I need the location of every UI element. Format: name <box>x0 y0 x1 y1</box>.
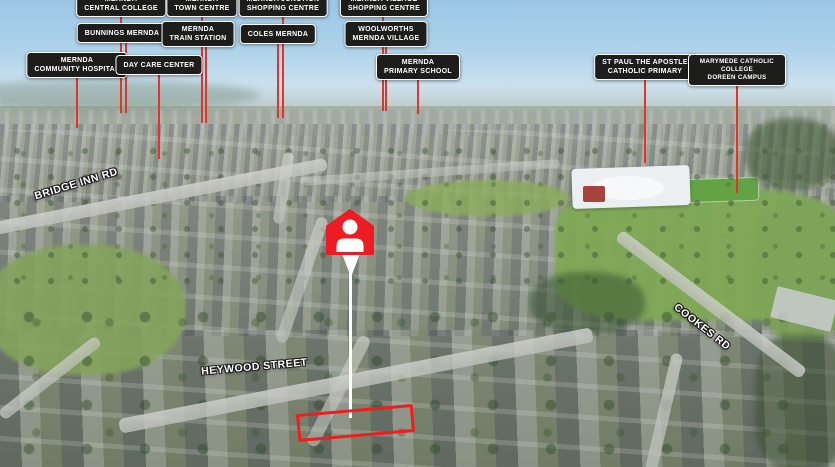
amenity-badge-mernda-primary-school: MERNDA PRIMARY SCHOOL <box>376 54 460 80</box>
pointer-line-day-care <box>158 73 160 159</box>
amenity-badge-marymede-doreen-campus: MARYMEDE CATHOLIC COLLEGE DOREEN CAMPUS <box>688 54 786 86</box>
amenity-badge-bunnings-mernda: BUNNINGS MERNDA <box>77 23 168 43</box>
school-red-building <box>583 186 605 202</box>
amenity-badge-mernda-town-centre: MERNDA TOWN CENTRE <box>166 0 237 17</box>
amenity-badge-mernda-community-hospital: MERNDA COMMUNITY HOSPITAL <box>26 52 127 78</box>
tree-cluster-right <box>745 118 835 190</box>
amenity-badge-mernda-junction-shopping-centre: MERNDA JUNCTION SHOPPING CENTRE <box>239 0 328 17</box>
amenity-badge-st-paul-the-apostle: ST PAUL THE APOSTLE CATHOLIC PRIMARY <box>594 54 696 80</box>
amenity-badge-mernda-village-shopping-centre: MERNDA VILLAGE SHOPPING CENTRE <box>340 0 428 17</box>
property-location-pin <box>326 209 374 255</box>
amenity-badge-woolworths-mernda-village: WOOLWORTHS MERNDA VILLAGE <box>345 21 428 47</box>
tree-cluster-center <box>530 272 645 334</box>
tree-speckles-foreground <box>0 295 835 467</box>
pointer-line-coles <box>277 41 279 118</box>
amenity-badge-day-care-center: DAY CARE CENTER <box>115 55 202 75</box>
tree-speckles-mid <box>0 138 835 298</box>
aerial-photo-scene: MERNDA CENTRAL COLLEGE MERNDA TOWN CENTR… <box>0 0 835 467</box>
pointer-line-marymede <box>736 75 738 193</box>
pointer-line-train-station <box>205 42 207 123</box>
amenity-badge-mernda-central-college: MERNDA CENTRAL COLLEGE <box>76 0 166 17</box>
pointer-line-community-hospital <box>76 74 78 128</box>
pointer-line-primary-school <box>417 76 419 114</box>
amenity-badge-coles-mernda: COLES MERNDA <box>240 24 316 44</box>
pin-pointer-line <box>349 272 352 418</box>
pointer-line-st-paul <box>644 75 646 163</box>
amenity-badge-mernda-train-station: MERNDA TRAIN STATION <box>162 21 235 47</box>
